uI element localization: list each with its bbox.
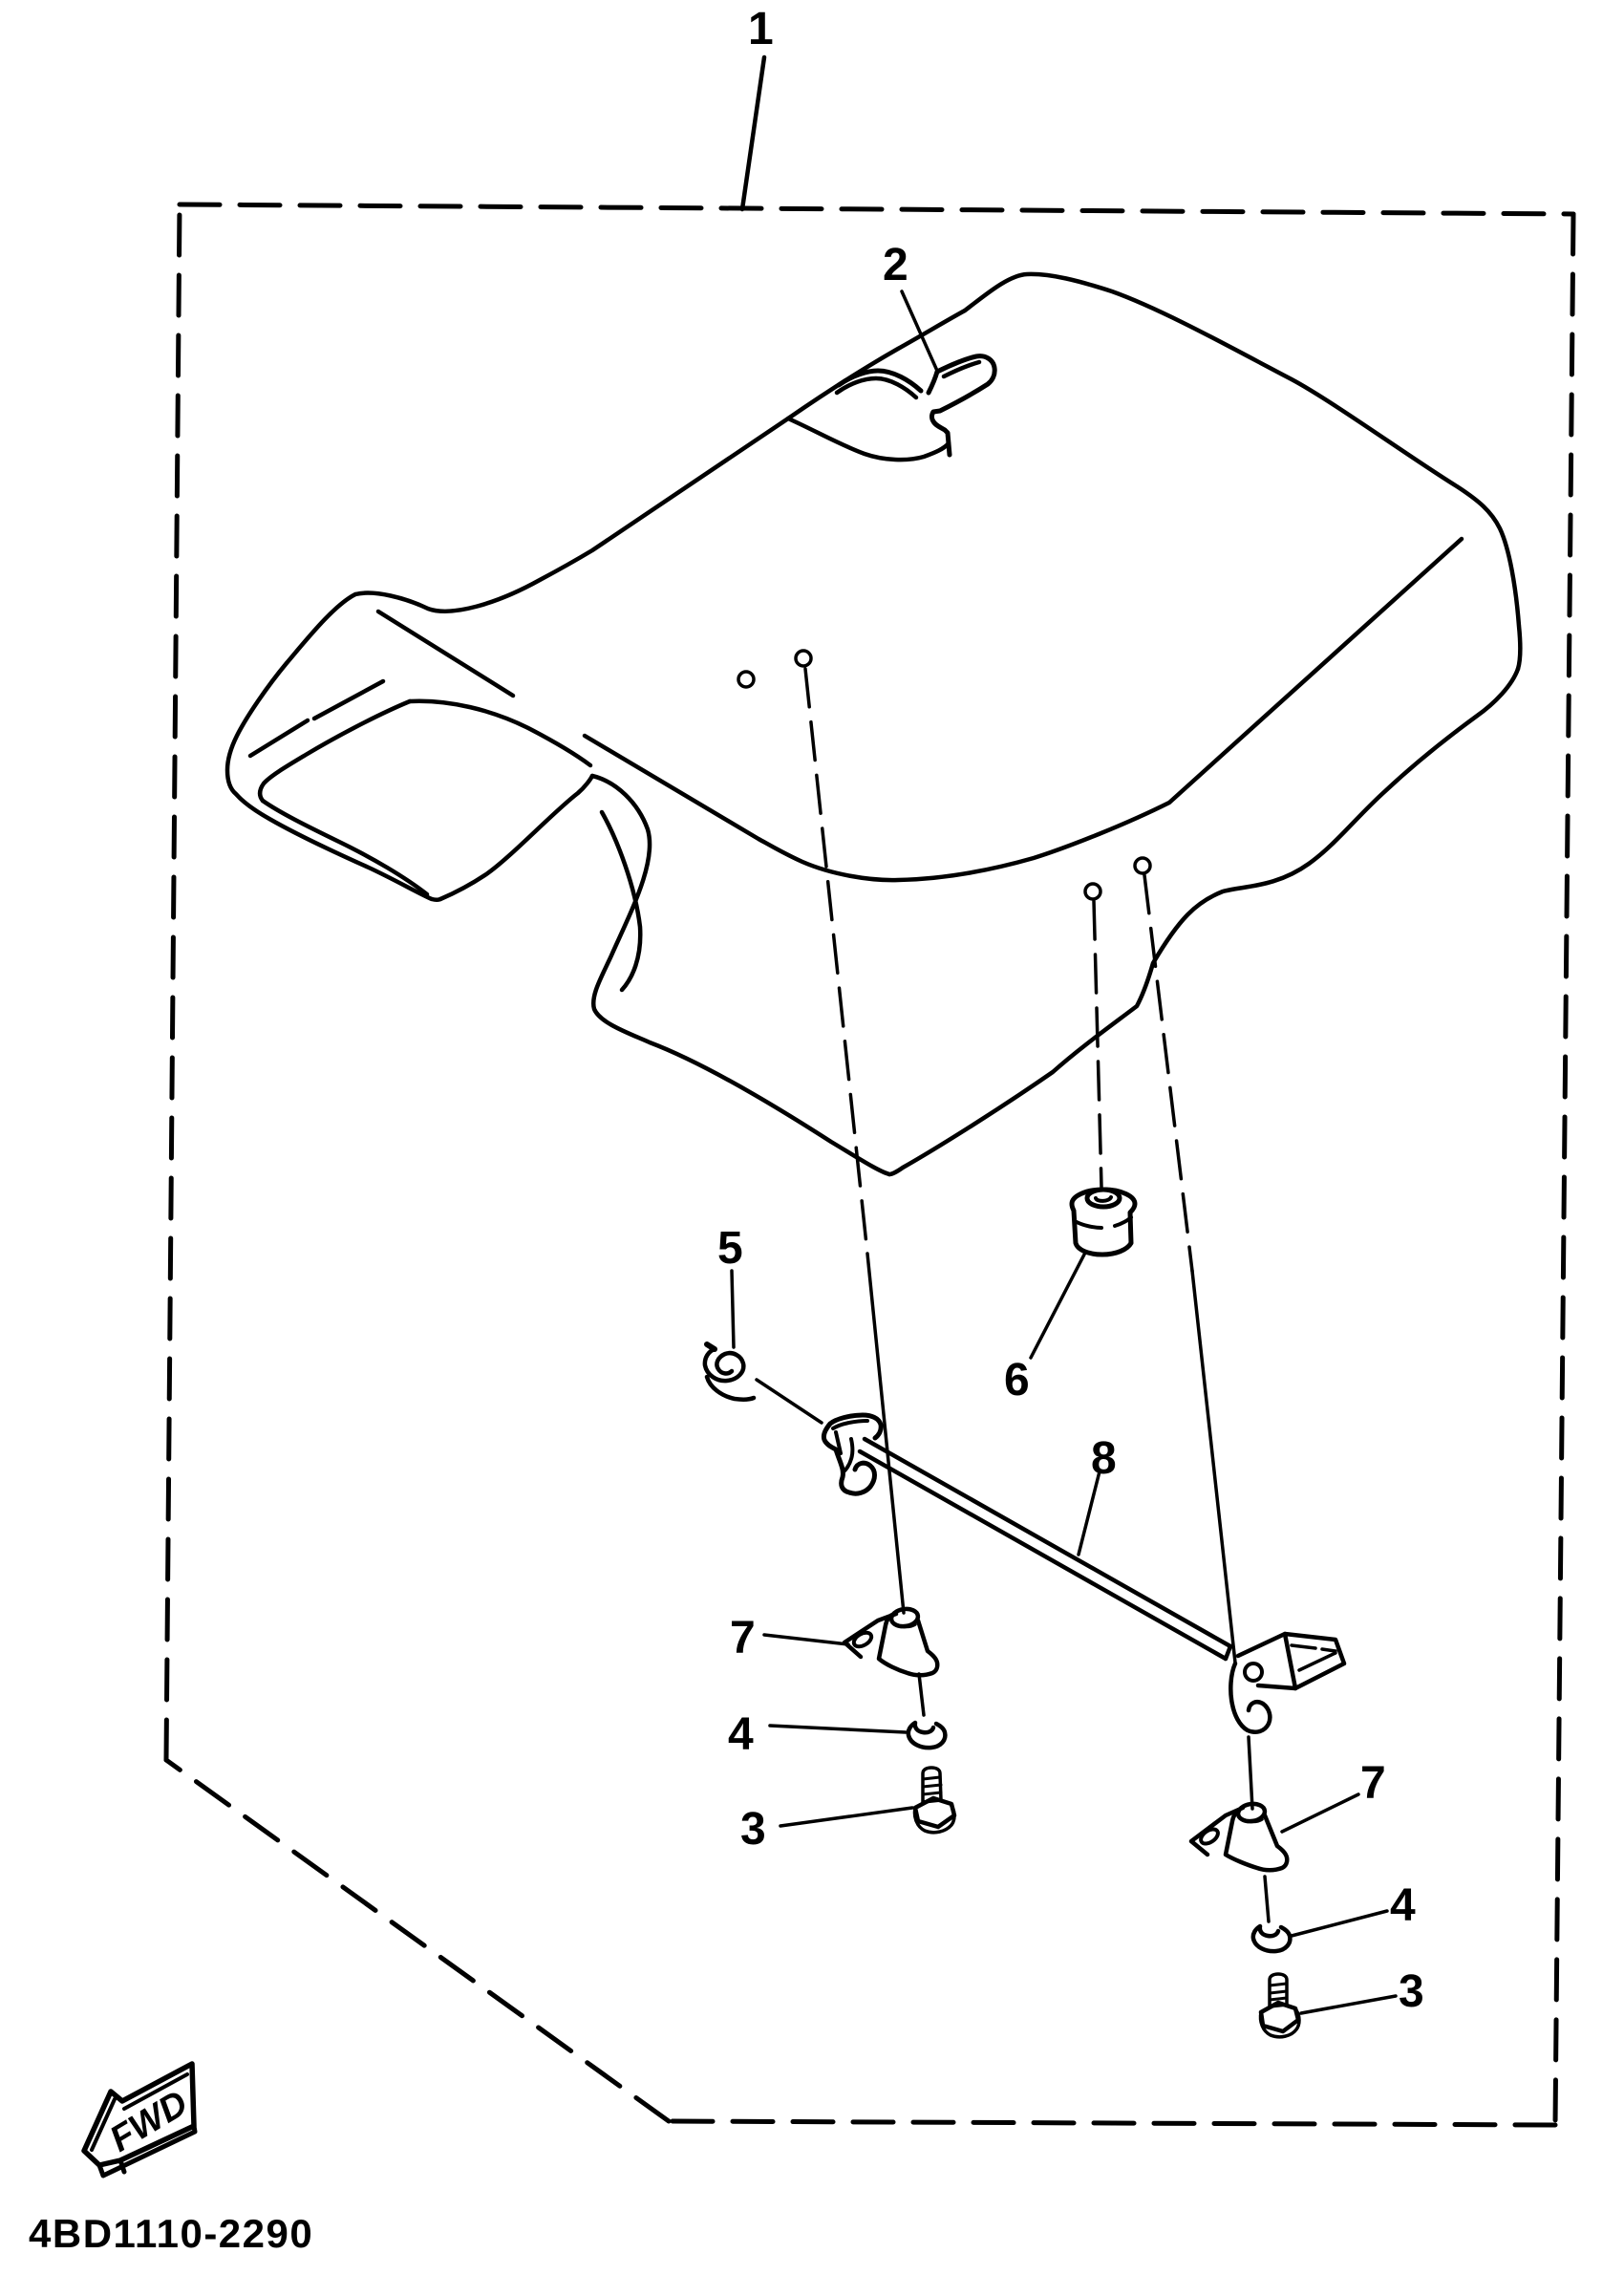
svg-text:4: 4 <box>728 1709 754 1760</box>
svg-text:6: 6 <box>1004 1355 1030 1406</box>
svg-text:7: 7 <box>1360 1758 1386 1809</box>
svg-text:7: 7 <box>730 1613 756 1663</box>
svg-text:3: 3 <box>740 1804 766 1855</box>
svg-text:2: 2 <box>883 240 908 290</box>
svg-text:5: 5 <box>717 1223 743 1274</box>
svg-text:4: 4 <box>1390 1880 1416 1931</box>
svg-text:4BD1110-2290: 4BD1110-2290 <box>29 2211 313 2256</box>
svg-text:1: 1 <box>748 4 774 54</box>
svg-text:3: 3 <box>1399 1966 1424 2017</box>
svg-text:8: 8 <box>1091 1433 1117 1484</box>
